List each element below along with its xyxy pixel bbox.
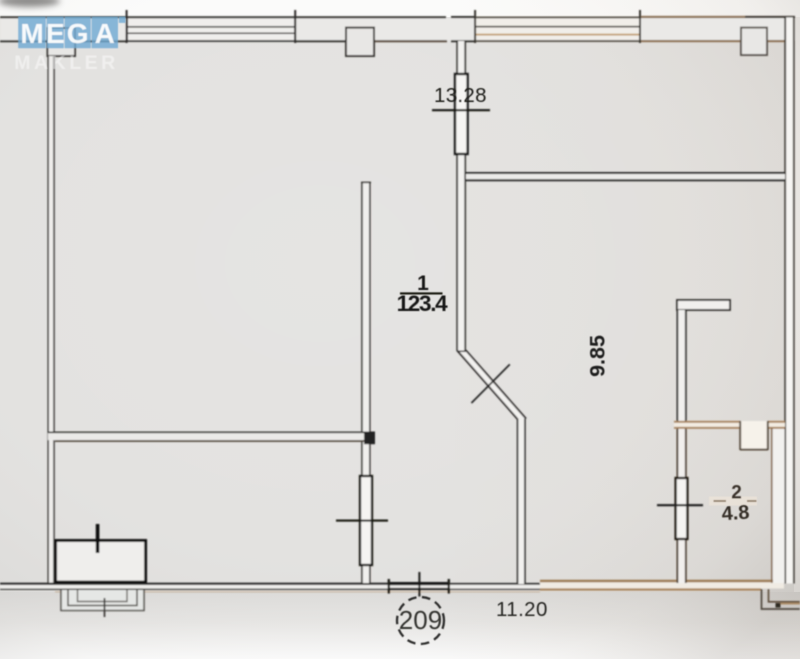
svg-text:G: G	[67, 18, 89, 49]
svg-text:11.20: 11.20	[496, 598, 548, 621]
svg-text:209: 209	[399, 605, 442, 635]
svg-text:9.85: 9.85	[586, 335, 610, 377]
svg-text:123.4: 123.4	[397, 291, 449, 316]
svg-text:13.28: 13.28	[434, 84, 487, 107]
svg-text:4.8: 4.8	[721, 502, 750, 526]
svg-text:E: E	[46, 18, 65, 49]
svg-text:M: M	[20, 18, 43, 49]
svg-text:A: A	[95, 18, 115, 49]
svg-text:MAKLER: MAKLER	[14, 52, 118, 74]
svg-text:2: 2	[731, 483, 742, 504]
